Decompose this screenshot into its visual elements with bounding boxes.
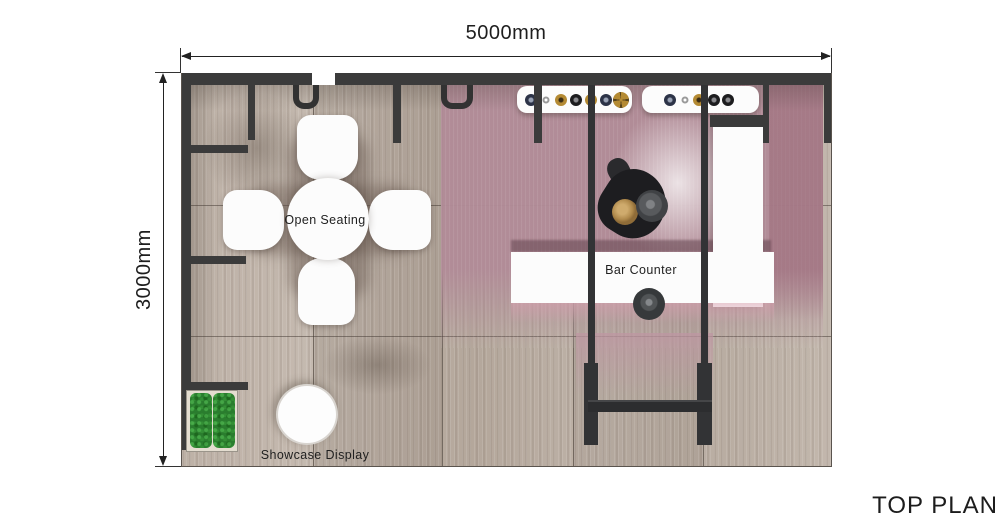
extension-line: [155, 466, 181, 467]
black-knob-icon: [708, 94, 720, 106]
height-dimension-label: 3000mm: [126, 208, 162, 332]
showcase-round-table: [276, 384, 338, 445]
partition-wall: [190, 145, 248, 153]
frame-post: [588, 85, 595, 363]
showcase-display-label: Showcase Display: [245, 448, 385, 462]
moss-planter: [186, 390, 238, 452]
partition-wall: [248, 85, 255, 140]
bar-stool: [633, 288, 665, 320]
partition-wall: [393, 85, 401, 143]
chair: [298, 258, 355, 325]
right-wall: [824, 73, 832, 143]
height-dimension-line: [163, 78, 164, 460]
person-figure: [636, 190, 668, 222]
floor-plan: [181, 73, 832, 467]
gold-knob-icon: [555, 94, 567, 106]
dimension-arrow-left-icon: [181, 52, 191, 60]
open-seating-label: Open Seating: [265, 213, 385, 227]
partition-wall: [190, 256, 246, 264]
extension-line: [155, 72, 181, 73]
top-wall: [182, 73, 832, 85]
person-figure: [612, 199, 638, 225]
gold-fan-knob-icon: [613, 92, 629, 108]
top-plan-drawing: 5000mm 3000mm: [0, 0, 1000, 527]
width-dimension-line: [182, 56, 830, 57]
white-knob-icon: [681, 96, 688, 103]
wall-chair: [441, 85, 473, 109]
partition-wall: [710, 115, 768, 127]
frame-crossbar: [588, 400, 712, 412]
black-knob-icon: [722, 94, 734, 106]
dimension-arrow-down-icon: [159, 456, 167, 466]
dimension-arrow-up-icon: [159, 73, 167, 83]
wall-opening: [312, 73, 335, 85]
partition-wall: [763, 85, 769, 143]
drawing-title: TOP PLAN: [848, 492, 998, 520]
partition-wall: [190, 382, 248, 390]
black-knob-icon: [570, 94, 582, 106]
moss-tuft: [213, 393, 235, 448]
floor-shadow: [322, 335, 432, 395]
extension-line: [831, 48, 832, 73]
wall-chair: [293, 85, 319, 109]
dimension-arrow-right-icon: [821, 52, 831, 60]
moss-tuft: [190, 393, 212, 448]
frame-post: [701, 85, 708, 363]
chair: [297, 115, 358, 180]
carpet-area: [769, 85, 823, 320]
white-knob-icon: [543, 96, 550, 103]
bar-counter-label: Bar Counter: [581, 263, 701, 277]
width-dimension-label: 5000mm: [406, 22, 606, 45]
navy-knob-icon: [600, 94, 612, 106]
navy-knob-icon: [664, 94, 676, 106]
extension-line: [180, 48, 181, 73]
partition-wall: [534, 85, 542, 143]
